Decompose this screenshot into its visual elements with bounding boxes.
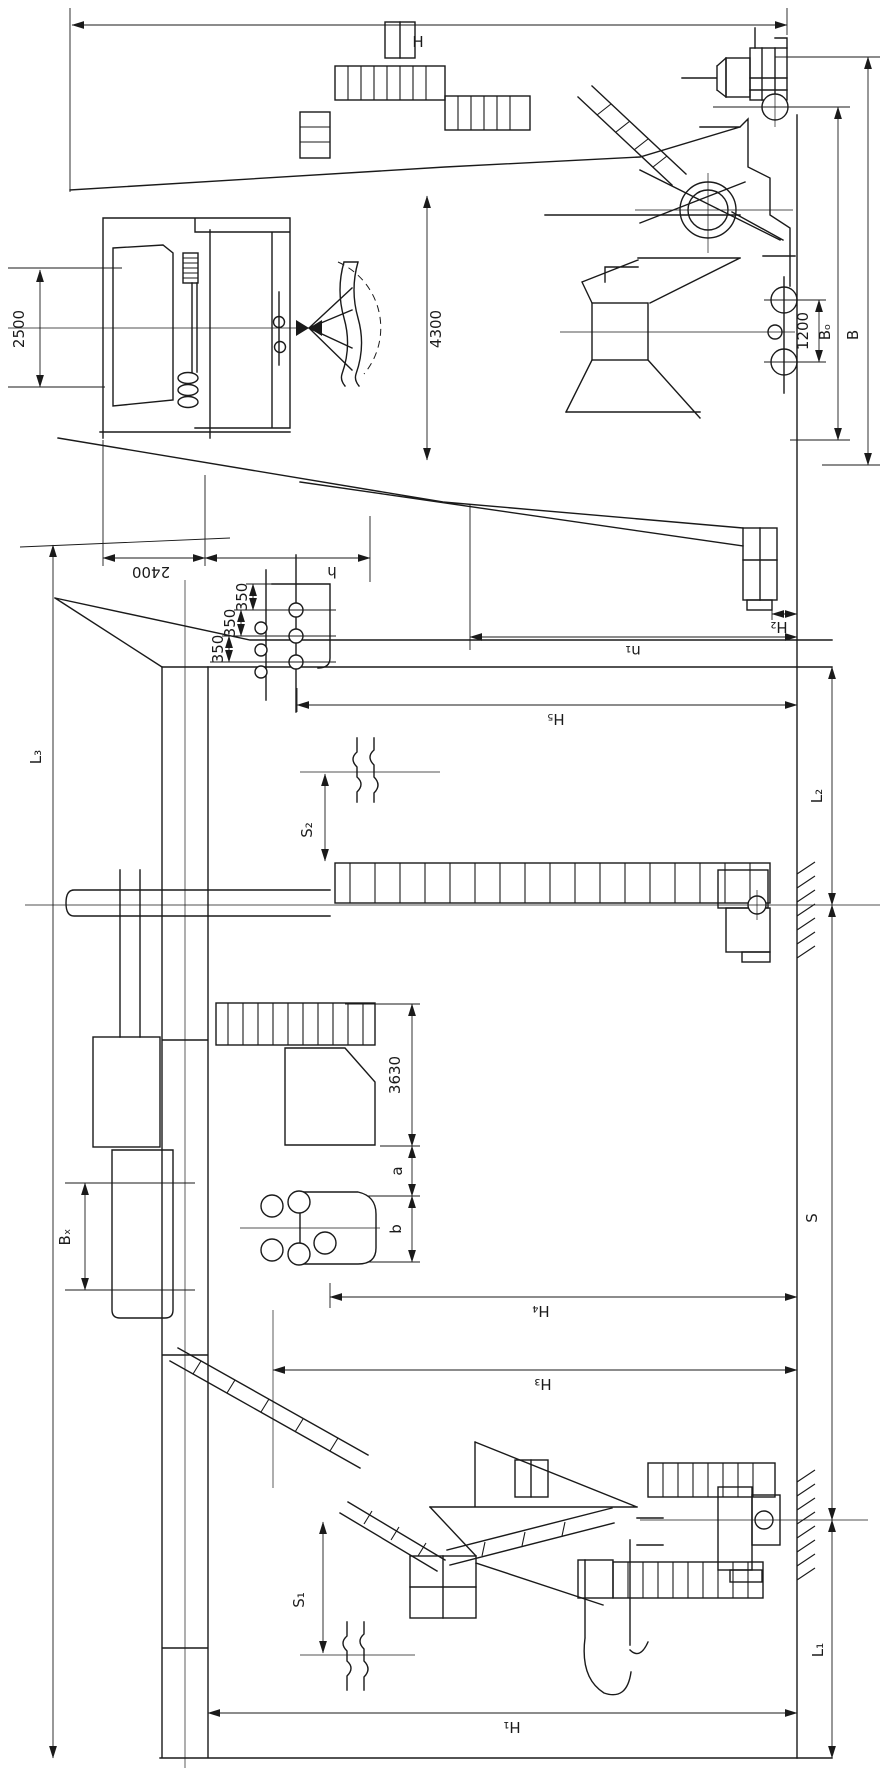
dim-label-Bo: Bₒ [816, 324, 834, 341]
spring-stack [178, 373, 198, 408]
dimension-lines [8, 8, 880, 1758]
dim-label-4300: 4300 [427, 310, 445, 348]
dim-label-S1: S₁ [290, 1592, 308, 1608]
dim-label-H: H [412, 33, 423, 51]
front-view [8, 22, 797, 610]
dim-label-a: a [388, 1166, 406, 1175]
upper-boom [66, 863, 770, 962]
crane-dimension-drawing: H 2500 4300 1200 Bₒ B 2400 h 350 350 350… [0, 0, 889, 1768]
dim-label-2500: 2500 [10, 310, 28, 348]
dim-label-L1: L₁ [809, 1643, 827, 1657]
lower-boom [578, 1463, 780, 1598]
dim-label-L3: L₃ [27, 750, 45, 764]
pin-detail [255, 555, 330, 712]
hopper-funnel [566, 258, 740, 418]
lower-truss [340, 1442, 637, 1618]
leg-foot [743, 528, 777, 610]
dim-label-350-1: 350 [233, 583, 251, 612]
dim-label-L2: L₂ [808, 789, 826, 803]
dim-label-1200: 1200 [794, 312, 812, 350]
dim-label-H3: H₃ [534, 1375, 551, 1393]
dim-label-350-3: 350 [209, 635, 227, 664]
dim-label-3630: 3630 [386, 1056, 404, 1094]
ground-line [797, 115, 815, 1758]
dim-label-B: B [844, 330, 862, 340]
trolley-block [216, 1003, 375, 1145]
dim-label-b: b [387, 1224, 405, 1234]
dim-label-H2: H₂ [770, 618, 787, 636]
platform-ladders [300, 22, 686, 185]
louver-grill [183, 253, 198, 283]
rail-break-upper [300, 738, 440, 802]
dim-label-n1: n₁ [625, 642, 641, 660]
buffer-assembly [682, 28, 787, 100]
rail-break-lower [300, 1622, 415, 1690]
dim-label-S2: S₂ [298, 822, 316, 838]
technical-drawing-sheet: H 2500 4300 1200 Bₒ B 2400 h 350 350 350… [0, 0, 889, 1768]
hook [584, 1540, 648, 1695]
dim-label-h: h [327, 563, 337, 581]
dim-label-Bx: Bₓ [56, 1229, 74, 1246]
leg-ladder [170, 1348, 368, 1468]
dim-label-S: S [803, 1213, 821, 1223]
grab-bucket-side [240, 1191, 380, 1265]
dim-label-2400: 2400 [132, 563, 170, 581]
dim-label-H1: H₁ [503, 1718, 520, 1736]
dim-label-350-2: 350 [221, 609, 239, 638]
dimension-labels: H 2500 4300 1200 Bₒ B 2400 h 350 350 350… [10, 33, 862, 1736]
side-view [25, 115, 880, 1768]
dim-label-H4: H₄ [532, 1302, 549, 1320]
dim-label-H5: H₅ [547, 710, 564, 728]
